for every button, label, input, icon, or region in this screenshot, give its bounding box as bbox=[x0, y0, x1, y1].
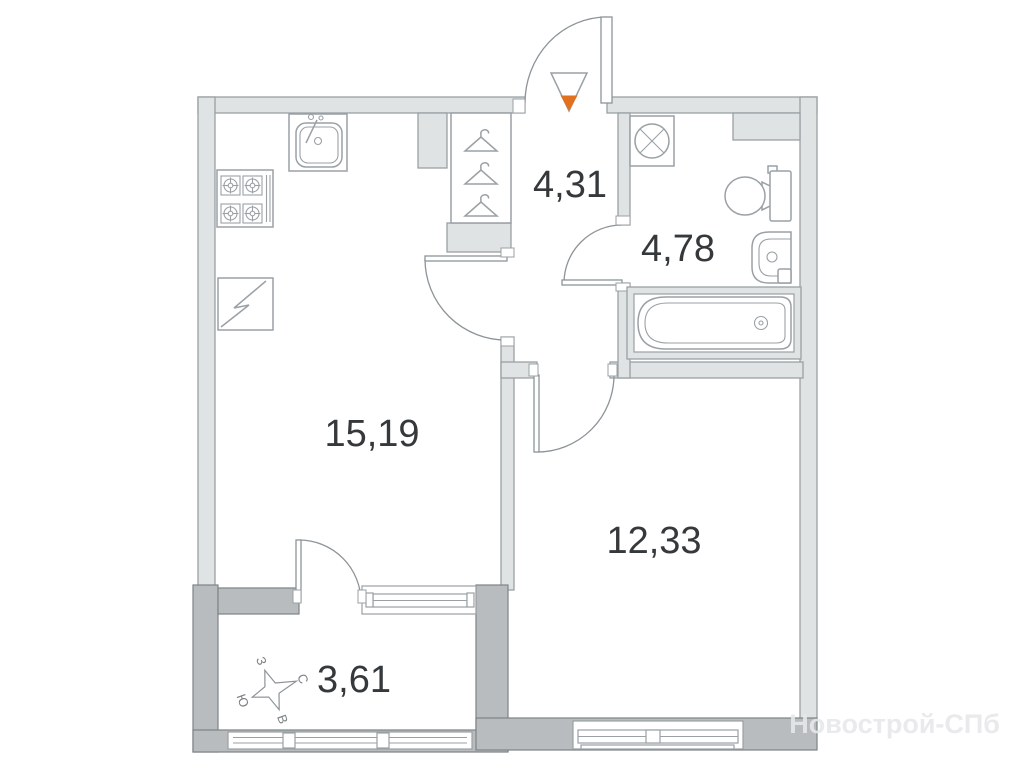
door-jamb bbox=[293, 590, 301, 603]
basin-tap-block bbox=[778, 269, 791, 283]
room-area-label-bedroom: 12,33 bbox=[606, 520, 701, 562]
wall-bath-left-upper bbox=[618, 113, 630, 225]
door-swing-arc bbox=[537, 375, 614, 452]
stove-icon bbox=[217, 170, 273, 227]
door-jamb bbox=[513, 99, 525, 113]
wall-balcony-top bbox=[218, 588, 299, 614]
bathtub-icon bbox=[627, 287, 801, 359]
wall-top-left bbox=[198, 97, 525, 113]
room-labels: 15,19 4,31 4,78 12,33 3,61 bbox=[317, 164, 715, 701]
refrigerator-icon bbox=[218, 278, 273, 330]
wardrobe bbox=[451, 113, 511, 223]
window-cap bbox=[366, 593, 373, 607]
door-swing-arc bbox=[564, 225, 622, 283]
bathroom-door bbox=[562, 216, 630, 291]
watermark: Новострой-СПб bbox=[789, 709, 1000, 739]
stove-body bbox=[217, 170, 273, 227]
wall-balcony-right bbox=[476, 585, 508, 730]
wall-right bbox=[800, 97, 817, 722]
door-leaf bbox=[562, 280, 622, 285]
bedroom-door bbox=[529, 364, 617, 452]
window-cap bbox=[467, 593, 474, 607]
room-area-label-living: 15,19 bbox=[324, 413, 419, 455]
glazing-frame bbox=[228, 732, 472, 749]
washbasin-icon bbox=[752, 232, 791, 283]
living-room-door bbox=[425, 248, 514, 346]
door-jamb bbox=[501, 248, 514, 257]
compass-star-icon bbox=[245, 661, 304, 717]
wall-bath-shaft bbox=[733, 113, 800, 140]
compass-south-label: Ю bbox=[234, 692, 253, 709]
room-area-label-hallway: 4,31 bbox=[533, 164, 607, 206]
door-leaf bbox=[601, 17, 612, 103]
floor-plan: 15,19 4,31 4,78 12,33 3,61 С Ю З В Новос… bbox=[0, 0, 1012, 768]
door-jamb bbox=[616, 216, 630, 225]
window-living-balcony bbox=[362, 586, 476, 614]
window-bedroom bbox=[573, 721, 743, 749]
compass-rose: С Ю З В bbox=[224, 643, 322, 736]
wall-top-right bbox=[607, 97, 817, 113]
door-leaf bbox=[425, 256, 507, 261]
floor-plan-canvas: 15,19 4,31 4,78 12,33 3,61 С Ю З В Новос… bbox=[0, 0, 1012, 768]
toilet-icon bbox=[725, 166, 791, 221]
door-jamb bbox=[358, 590, 366, 603]
door-swing-arc bbox=[425, 259, 507, 340]
toilet-cistern bbox=[770, 171, 791, 221]
window-sill bbox=[581, 745, 734, 749]
room-area-label-bathroom: 4,78 bbox=[641, 228, 715, 270]
window-balcony-glazing bbox=[228, 732, 472, 749]
wall-left bbox=[198, 97, 215, 590]
entrance-marker-icon bbox=[551, 73, 587, 111]
room-area-label-balcony: 3,61 bbox=[317, 659, 391, 701]
compass-east-label: В bbox=[274, 712, 291, 725]
entrance-door bbox=[513, 17, 612, 113]
compass-north-label: С bbox=[294, 672, 311, 686]
door-jamb bbox=[501, 337, 514, 346]
wall-hall-bottom-right bbox=[610, 362, 803, 378]
window-mullion bbox=[646, 730, 660, 743]
door-jamb bbox=[529, 364, 538, 376]
compass-west-label: З bbox=[253, 655, 270, 668]
balcony-door bbox=[293, 540, 366, 603]
entrance-triangle-accent bbox=[561, 96, 578, 112]
glazing-mullion bbox=[377, 733, 389, 748]
door-jamb bbox=[608, 364, 617, 376]
glazing-mullion bbox=[283, 733, 295, 748]
toilet-bowl bbox=[725, 177, 765, 215]
wall-closet-shaft bbox=[418, 113, 447, 168]
wall-balcony-left bbox=[193, 585, 218, 752]
kitchen-sink-icon bbox=[289, 114, 347, 171]
door-leaf bbox=[534, 375, 539, 452]
washing-machine-icon bbox=[630, 116, 674, 166]
door-swing-arc bbox=[299, 540, 361, 602]
